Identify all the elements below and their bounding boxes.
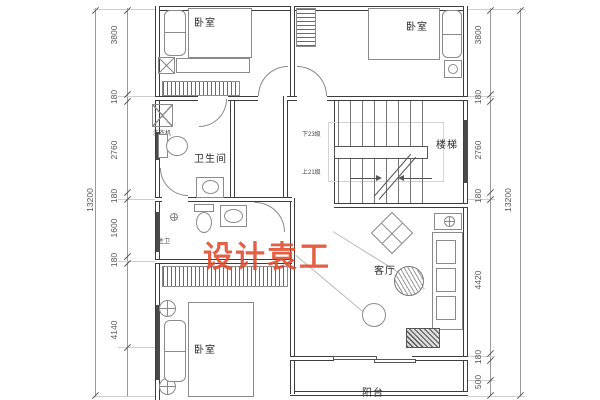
nightstand-knob-icon — [448, 64, 458, 74]
floor-plan: 13200 3800 180 2760 180 1600 180 4140 13… — [0, 0, 600, 400]
wall — [463, 6, 468, 396]
dim-label: 4140 — [109, 321, 119, 340]
dim-label: 1600 — [109, 219, 119, 238]
stairs-down-label: 下23级 — [302, 129, 321, 138]
dim-label: 2760 — [109, 141, 119, 160]
dim-label: 2760 — [473, 141, 483, 160]
side-table-dish-icon — [444, 216, 455, 227]
tv-cabinet-hatch — [406, 328, 440, 348]
wall — [287, 96, 297, 101]
room-label: 阳台 — [362, 384, 384, 399]
dimension-line-right-outer — [520, 8, 521, 397]
dim-label: 3800 — [109, 26, 119, 45]
dim-label: 180 — [473, 90, 483, 104]
wall — [290, 356, 334, 361]
room-label: 卧室 — [194, 341, 216, 356]
extension-line — [118, 261, 157, 262]
dimension-line-right-inner — [490, 8, 491, 397]
pillow-divider — [165, 32, 185, 33]
pillow-divider — [165, 351, 185, 352]
window — [156, 305, 160, 380]
dim-label: 4420 — [473, 271, 483, 290]
toilet-icon — [196, 212, 212, 233]
sofa-cushion — [436, 240, 456, 264]
wall — [155, 96, 198, 101]
window — [464, 120, 468, 183]
stairs-label: 楼梯 — [436, 136, 458, 151]
stair-arrow-icon — [376, 175, 382, 181]
low-cabinet — [176, 58, 250, 73]
stair-arrow-line — [404, 178, 432, 179]
wall — [334, 203, 468, 208]
wall — [230, 96, 235, 202]
stair-arrow-icon — [398, 175, 404, 181]
window — [156, 212, 160, 252]
dim-label: 13200 — [85, 188, 95, 212]
wall — [412, 356, 468, 361]
dim-label: 13200 — [503, 188, 513, 212]
dim-label: 180 — [109, 253, 119, 267]
dim-label: 180 — [473, 189, 483, 203]
extension-line — [118, 199, 157, 200]
door-arc-icon — [255, 202, 285, 232]
room-label: 卫生间 — [194, 150, 227, 165]
sink-icon — [224, 209, 243, 223]
bed — [368, 8, 440, 60]
room-label: 卧室 — [194, 14, 216, 29]
washing-machine-icon — [152, 104, 173, 127]
extension-line — [93, 9, 157, 10]
stairs-up-label: 上21级 — [302, 167, 321, 176]
wardrobe-hatch — [162, 81, 240, 96]
toilet-icon — [202, 180, 219, 194]
dim-label: 3800 — [473, 26, 483, 45]
room-label: 卧室 — [406, 18, 428, 33]
dim-label: 500 — [473, 375, 483, 389]
coffee-table-icon — [371, 212, 413, 254]
door-arc-icon — [297, 66, 327, 96]
wall — [228, 96, 258, 101]
pillow — [164, 10, 186, 56]
rug-icon — [394, 266, 424, 296]
dim-label: 180 — [109, 189, 119, 203]
extension-line — [468, 396, 525, 397]
toilet-tank — [194, 204, 214, 212]
nightstand-icon — [159, 300, 176, 317]
dim-label: 180 — [473, 350, 483, 364]
door-arc-icon — [258, 66, 288, 96]
room-label: 主卫 — [158, 236, 170, 245]
stair-arrow-line — [350, 178, 378, 179]
wall — [155, 197, 162, 202]
dimension-line-left-outer — [95, 8, 96, 397]
extension-line — [468, 9, 525, 10]
sofa-cushion — [436, 268, 456, 292]
wall — [290, 6, 295, 98]
extension-line — [93, 396, 157, 397]
dim-label: 180 — [109, 90, 119, 104]
wall — [290, 198, 295, 394]
pillow-divider — [443, 34, 461, 35]
door-arc-icon — [160, 168, 188, 196]
stool-icon — [362, 303, 386, 327]
watermark: 设计袁工 — [203, 232, 331, 276]
door-arc-icon — [199, 99, 227, 127]
sofa-cushion — [436, 296, 456, 320]
floor-drain-icon — [170, 213, 178, 221]
wardrobe-hatch — [296, 8, 316, 47]
sliding-door-icon — [333, 356, 377, 360]
extension-line — [118, 347, 157, 348]
dimension-line-left-inner — [127, 8, 128, 397]
wall — [283, 96, 288, 202]
stairs-treads-upper — [338, 101, 426, 147]
room-label: 客厅 — [374, 262, 396, 277]
basin-icon — [166, 136, 188, 156]
nightstand-icon — [158, 57, 175, 74]
sliding-door-icon — [374, 359, 416, 363]
